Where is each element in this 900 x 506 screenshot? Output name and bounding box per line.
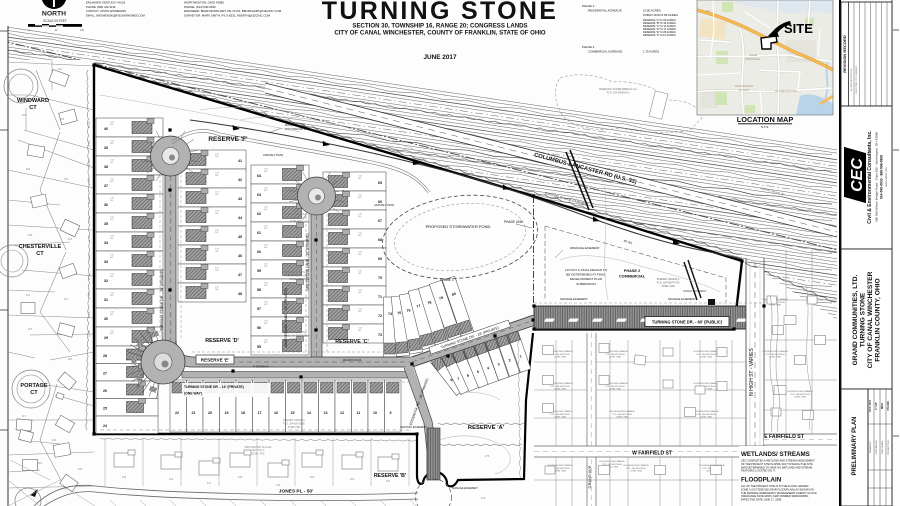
svg-text:35' R/W: 35' R/W xyxy=(89,235,91,242)
svg-text:RESERVE 'A': RESERVE 'A' xyxy=(468,425,505,431)
svg-text:35' R/W: 35' R/W xyxy=(89,311,91,318)
svg-text:RESERVE 'C': RESERVE 'C' xyxy=(335,339,369,345)
svg-text:35' R/W: 35' R/W xyxy=(89,330,91,337)
svg-text:ZONE: GRB: ZONE: GRB xyxy=(794,397,806,399)
svg-text:1 6/16/17 PER CITY COMME: 1 6/16/17 PER CITY COMMENTS xyxy=(856,65,858,94)
svg-text:14: 14 xyxy=(307,411,311,415)
svg-text:CHESTERVILLE: CHESTERVILLE xyxy=(19,244,62,250)
svg-text:PUBLIC R/W=3.68 ACRES: PUBLIC R/W=3.68 ACRES xyxy=(643,13,678,17)
svg-text:REVISION RECORD: REVISION RECORD xyxy=(842,35,847,73)
svg-text:ZONE: GRB: ZONE: GRB xyxy=(661,285,675,288)
svg-text:HOUSEHOLDER, NAME A: HOUSEHOLDER, NAME A xyxy=(693,410,719,413)
svg-text:RESIDENTIAL ACREAGE: RESIDENTIAL ACREAGE xyxy=(588,8,622,12)
svg-text:38: 38 xyxy=(104,165,108,169)
svg-text:P.I.D. 184-002218-00: P.I.D. 184-002218-00 xyxy=(765,354,785,356)
svg-text:112: 112 xyxy=(26,293,31,297)
svg-text:HOUSEHOLDER, NAME A: HOUSEHOLDER, NAME A xyxy=(787,390,813,393)
svg-text:RESERVE 'D': RESERVE 'D' xyxy=(205,338,239,344)
svg-text:HOUSEHOLDER, NAME A: HOUSEHOLDER, NAME A xyxy=(599,460,625,463)
svg-text:W FAIRFIELD ST: W FAIRFIELD ST xyxy=(632,451,672,457)
svg-text:P.I.D. 184-002218-00: P.I.D. 184-002218-00 xyxy=(790,394,810,396)
svg-text:PHASE 2: PHASE 2 xyxy=(624,269,640,273)
svg-text:HOUSEHOLDER, NAME A: HOUSEHOLDER, NAME A xyxy=(693,350,719,353)
svg-text:PORTAGE: PORTAGE xyxy=(20,383,48,389)
svg-text:LAYOUT & FINAL DESIGN TO: LAYOUT & FINAL DESIGN TO xyxy=(565,268,608,272)
svg-text:26: 26 xyxy=(103,389,107,393)
svg-text:JAMESTOWNE LANE - 26' (PRIVATE: JAMESTOWNE LANE - 26' (PRIVATE) xyxy=(284,288,288,348)
svg-text:24: 24 xyxy=(103,424,107,428)
svg-text:PHASE LINE: PHASE LINE xyxy=(504,220,523,224)
svg-text:72: 72 xyxy=(378,314,382,318)
svg-text:FRANKLIN COUNTY, OHIO: FRANKLIN COUNTY, OHIO xyxy=(875,278,882,361)
svg-text:130: 130 xyxy=(78,467,83,471)
svg-text:15: 15 xyxy=(291,411,295,415)
svg-text:PFEIFER, DAMON A: PFEIFER, DAMON A xyxy=(285,271,307,274)
svg-text:ALL OF THE PROJECT SITE IS IN: ALL OF THE PROJECT SITE IS IN THE FLOOD … xyxy=(741,484,808,488)
svg-text:ZONE: GRB: ZONE: GRB xyxy=(554,471,566,473)
svg-text:RESERVE 'F': RESERVE 'F' xyxy=(208,136,248,143)
svg-text:10: 10 xyxy=(373,411,377,415)
svg-text:146: 146 xyxy=(169,477,174,481)
svg-text:ZONE: GRB: ZONE: GRB xyxy=(769,357,781,359)
svg-text:PFEIFER, DAMON A: PFEIFER, DAMON A xyxy=(285,331,307,334)
svg-text:WETLANDS/ STREAMS: WETLANDS/ STREAMS xyxy=(741,451,810,458)
svg-text:CITY OF CANAL WINCHESTER: CITY OF CANAL WINCHESTER xyxy=(867,271,874,368)
svg-text:35' R/W: 35' R/W xyxy=(89,273,91,280)
svg-text:CT: CT xyxy=(36,251,44,257)
svg-text:ZONE: GRB: ZONE: GRB xyxy=(554,417,566,419)
svg-text:ZONE: PND: ZONE: PND xyxy=(290,339,303,341)
svg-text:CONTACT: JASON WISNIEWSKI: CONTACT: JASON WISNIEWSKI xyxy=(86,9,126,13)
svg-text:35' R/W: 35' R/W xyxy=(89,197,91,204)
svg-text:35' R/W: 35' R/W xyxy=(89,216,91,223)
svg-text:68: 68 xyxy=(378,238,382,242)
svg-text:P.I.D. 184-002218-00: P.I.D. 184-002218-00 xyxy=(605,386,625,388)
svg-text:N.T.S.: N.T.S. xyxy=(761,125,769,129)
svg-text:28: 28 xyxy=(103,354,107,358)
svg-text:TURNING STONE: TURNING STONE xyxy=(860,292,867,347)
svg-text:ZONE: GRB: ZONE: GRB xyxy=(554,357,566,359)
svg-text:174: 174 xyxy=(481,496,486,500)
svg-text:N HIGH ST - VARIES: N HIGH ST - VARIES xyxy=(749,348,755,396)
svg-text:CEC: CEC xyxy=(849,158,866,192)
svg-text:P.I.D. 184-000747-00: P.I.D. 184-000747-00 xyxy=(657,282,680,285)
svg-text:PHASE 1: PHASE 1 xyxy=(440,278,454,282)
svg-text:18: 18 xyxy=(241,411,245,415)
svg-text:46: 46 xyxy=(238,254,242,258)
svg-text:SITE: SITE xyxy=(784,21,813,36)
svg-text:TURNING STONE DR. - 16' (PRIVA: TURNING STONE DR. - 16' (PRIVATE) xyxy=(184,385,244,389)
svg-text:ZONE: GRB: ZONE: GRB xyxy=(700,357,712,359)
svg-text:22: 22 xyxy=(175,411,179,415)
svg-text:WINDWARD: WINDWARD xyxy=(17,98,49,104)
svg-text:P.I.D. 184-002218-00: P.I.D. 184-002218-00 xyxy=(550,414,570,416)
svg-text:614-540-6633 - 888-598-6808: 614-540-6633 - 888-598-6808 xyxy=(880,155,884,199)
svg-text:ROUTING PATH: ROUTING PATH xyxy=(285,127,306,131)
svg-text:15.80 ACRES: 15.80 ACRES xyxy=(643,8,661,12)
svg-text:PFEIFER, DAMON A: PFEIFER, DAMON A xyxy=(285,213,307,216)
svg-text:PRELIMINARY PLAN: PRELIMINARY PLAN xyxy=(852,416,858,475)
svg-text:P.I.D. 184-000738-00: P.I.D. 184-000738-00 xyxy=(283,423,305,425)
svg-text:ASPHALT PATH: ASPHALT PATH xyxy=(263,153,283,157)
svg-text:MANOR: MANOR xyxy=(739,88,749,92)
svg-text:ZONE X (OUTSIDE 500-YEAR FLOOD: ZONE X (OUTSIDE 500-YEAR FLOODPLAIN) AS … xyxy=(741,487,814,491)
svg-text:12: 12 xyxy=(340,411,344,415)
svg-text:17: 17 xyxy=(258,411,262,415)
svg-text:35' R/W: 35' R/W xyxy=(89,178,91,185)
svg-text:SURVEYOR: MARK SMITH, PS S-823: SURVEYOR: MARK SMITH, PS S-8231, MSMITH@… xyxy=(184,13,271,17)
svg-text:48: 48 xyxy=(238,292,242,296)
svg-text:35' R/W: 35' R/W xyxy=(89,121,91,128)
svg-text:250 Old Wilson Bridge Road - S: 250 Old Wilson Bridge Road - Suite 250 -… xyxy=(875,132,879,222)
svg-text:55: 55 xyxy=(257,345,261,349)
svg-text:CITY OF CANAL WINCHESTER, COUN: CITY OF CANAL WINCHESTER, COUNTY OF FRAN… xyxy=(334,30,546,37)
svg-text:145: 145 xyxy=(122,475,127,479)
svg-text:RESERVE 'B': RESERVE 'B' xyxy=(374,473,406,479)
svg-text:REUBEN BOYES: REUBEN BOYES xyxy=(775,89,797,93)
svg-text:CHECKED BY:: CHECKED BY: xyxy=(876,439,878,454)
svg-text:NO. DATE DESCRIPTIO: NO. DATE DESCRIPTION xyxy=(850,68,853,91)
svg-text:113: 113 xyxy=(64,297,69,301)
svg-text:107: 107 xyxy=(64,177,69,181)
svg-text:33: 33 xyxy=(104,260,108,264)
svg-text:MAILBOX KIOSK: MAILBOX KIOSK xyxy=(343,359,362,362)
svg-text:106: 106 xyxy=(26,167,31,171)
svg-text:P.I.D. 184-000746-00: P.I.D. 184-000746-00 xyxy=(285,217,307,219)
svg-text:40: 40 xyxy=(104,127,108,131)
svg-text:36: 36 xyxy=(104,203,108,207)
svg-text:59: 59 xyxy=(257,269,261,273)
svg-text:148: 148 xyxy=(238,475,243,479)
svg-text:SIGNAGE EASEMENT: SIGNAGE EASEMENT xyxy=(668,297,696,301)
svg-text:RESERVE 'E': RESERVE 'E' xyxy=(201,358,229,363)
svg-text:64: 64 xyxy=(257,174,261,178)
svg-text:69: 69 xyxy=(378,257,382,261)
svg-text:ZONE: PND: ZONE: PND xyxy=(251,452,264,455)
svg-text:175: 175 xyxy=(485,454,490,458)
svg-text:58: 58 xyxy=(257,288,261,292)
svg-text:TURNING STONE DR. - 26' (PRIVA: TURNING STONE DR. - 26' (PRIVATE) xyxy=(160,269,164,330)
svg-text:EMAIL: JWISNIEWSKI@FISCHERHOME: EMAIL: JWISNIEWSKI@FISCHERHOMES.COM xyxy=(86,13,145,17)
svg-text:OF THE PROJECT SITE IN APRIL 2: OF THE PROJECT SITE IN APRIL 2017 IN WHI… xyxy=(741,462,813,466)
svg-text:PROPOSED STORMWATER POND: PROPOSED STORMWATER POND xyxy=(426,224,491,229)
svg-text:20: 20 xyxy=(208,411,212,415)
svg-text:ZONE: PND: ZONE: PND xyxy=(290,279,303,281)
svg-text:43: 43 xyxy=(238,197,242,201)
svg-text:ZONE: PND: ZONE: PND xyxy=(290,221,303,223)
svg-text:60: 60 xyxy=(257,250,261,254)
svg-text:(ONE WAY): (ONE WAY) xyxy=(184,392,202,396)
svg-text:PHASE 2:: PHASE 2: xyxy=(582,45,595,49)
svg-text:ZONE: GRB: ZONE: GRB xyxy=(554,389,566,391)
svg-text:PFEIFER, DAMON A: PFEIFER, DAMON A xyxy=(283,419,305,422)
svg-text:29: 29 xyxy=(104,336,108,340)
svg-text:PROJECT NO:: PROJECT NO: xyxy=(888,439,890,454)
svg-text:103: 103 xyxy=(22,113,27,117)
svg-text:16: 16 xyxy=(274,411,278,415)
svg-text:JONES PL - 50': JONES PL - 50' xyxy=(279,489,313,495)
svg-text:THE FEDERAL EMERGENCY MANAGEME: THE FEDERAL EMERGENCY MANAGEMENT AGENCY … xyxy=(741,491,817,495)
svg-text:151: 151 xyxy=(350,477,355,481)
svg-text:LOCATION MAP: LOCATION MAP xyxy=(737,115,794,124)
svg-text:(33): (33) xyxy=(706,10,710,13)
svg-text:TURNING STONE DR. - 60' (PUBLI: TURNING STONE DR. - 60' (PUBLIC) xyxy=(652,320,723,325)
svg-text:PHONE: (859) 344-3136: PHONE: (859) 344-3136 xyxy=(86,5,116,9)
svg-text:CEC COMPLETED A WETLAND AND ST: CEC COMPLETED A WETLAND AND STREAM ASSES… xyxy=(741,459,815,463)
svg-text:COMMERCIAL ACREAGE: COMMERCIAL ACREAGE xyxy=(588,50,622,54)
svg-text:INSURANCE RATE MAPS, MAP NUMBE: INSURANCE RATE MAPS, MAP NUMBER 39049C04… xyxy=(741,494,809,498)
svg-text:30: 30 xyxy=(104,317,108,321)
svg-text:31: 31 xyxy=(104,298,108,302)
svg-text:35' R/W: 35' R/W xyxy=(89,254,91,261)
svg-text:11: 11 xyxy=(357,411,361,415)
svg-text:www.cecinc.com: www.cecinc.com xyxy=(884,167,888,186)
svg-text:RESERVE "F"=3.10 ACRES: RESERVE "F"=3.10 ACRES xyxy=(643,33,676,37)
svg-text:BE DETERMINED AT FINAL: BE DETERMINED AT FINAL xyxy=(566,273,606,277)
svg-text:ZONE: GRB: ZONE: GRB xyxy=(630,471,642,473)
svg-text:39: 39 xyxy=(104,146,108,150)
svg-text:DEVELOPMENT PLAN: DEVELOPMENT PLAN xyxy=(570,277,602,281)
svg-text:44: 44 xyxy=(238,216,242,220)
svg-text:75: 75 xyxy=(397,311,401,315)
svg-text:P.I.D. 184-000746-00: P.I.D. 184-000746-00 xyxy=(285,275,307,277)
svg-text:SECTION 30, TOWNSHIP 16, RANGE: SECTION 30, TOWNSHIP 16, RANGE 20; CONGR… xyxy=(352,23,527,30)
svg-text:27: 27 xyxy=(103,372,107,376)
svg-text:57: 57 xyxy=(257,307,261,311)
svg-text:P.I.D. 184-002218-00: P.I.D. 184-002218-00 xyxy=(696,414,716,416)
svg-text:73: 73 xyxy=(378,333,382,337)
svg-text:65: 65 xyxy=(378,181,382,185)
svg-text:147: 147 xyxy=(207,481,212,485)
svg-text:120: 120 xyxy=(80,29,85,32)
svg-text:TURNING STONE: TURNING STONE xyxy=(322,0,558,25)
svg-text:P.I.D. 184-002218-00: P.I.D. 184-002218-00 xyxy=(696,354,716,356)
svg-text:SIGNAGE EASEMENT: SIGNAGE EASEMENT xyxy=(452,487,478,490)
svg-text:32: 32 xyxy=(104,279,108,283)
svg-text:ZONE: GRB: ZONE: GRB xyxy=(609,389,621,391)
svg-text:119: 119 xyxy=(38,461,43,465)
svg-text:DRAINAGE EASEMENT: DRAINAGE EASEMENT xyxy=(570,246,600,250)
svg-text:SANITARY EASEMENT: SANITARY EASEMENT xyxy=(400,426,427,429)
svg-text:P.I.D. 184-002218-00: P.I.D. 184-002218-00 xyxy=(626,468,646,470)
svg-text:9: 9 xyxy=(390,411,392,415)
svg-text:NORTH: NORTH xyxy=(42,11,66,18)
svg-text:152: 152 xyxy=(386,479,391,483)
svg-text:ZONE: GRB: ZONE: GRB xyxy=(700,417,712,419)
svg-text:GREYSTONE LANE - 26' (PRIVATE): GREYSTONE LANE - 26' (PRIVATE) xyxy=(306,233,310,290)
svg-text:110: 110 xyxy=(68,237,73,241)
svg-text:67: 67 xyxy=(378,219,382,223)
svg-text:104: 104 xyxy=(60,117,65,121)
svg-text:47: 47 xyxy=(238,273,242,277)
svg-text:P.I.D. 184-002218-00: P.I.D. 184-002218-00 xyxy=(550,386,570,388)
svg-text:P.I.D. 184-000748-00: P.I.D. 184-000748-00 xyxy=(285,335,307,337)
svg-text:HOUSEHOLDER, NAME A: HOUSEHOLDER, NAME A xyxy=(693,382,719,385)
svg-text:HOUSEHOLDER, NAME A: HOUSEHOLDER, NAME A xyxy=(762,350,788,353)
svg-text:42: 42 xyxy=(238,178,242,182)
svg-text:13: 13 xyxy=(324,411,328,415)
svg-text:37: 37 xyxy=(104,184,108,188)
svg-text:35' R/W: 35' R/W xyxy=(89,140,91,147)
svg-text:FEATURES LOCATED ON IT.: FEATURES LOCATED ON IT. xyxy=(741,469,776,473)
svg-text:ERLANGER, KENTUCKY 41018: ERLANGER, KENTUCKY 41018 xyxy=(86,1,126,5)
svg-text:ZONE: GRB: ZONE: GRB xyxy=(609,357,621,359)
svg-text:MDO: MDO xyxy=(880,403,884,409)
svg-text:OCT. 2017: OCT. 2017 xyxy=(868,399,872,412)
svg-text:JUNE 2017: JUNE 2017 xyxy=(423,54,456,61)
svg-text:DRAWN BY:: DRAWN BY: xyxy=(869,441,872,454)
svg-text:ZONE: GRB: ZONE: GRB xyxy=(616,417,628,419)
svg-text:CT: CT xyxy=(29,105,37,111)
svg-text:150: 150 xyxy=(310,475,315,479)
svg-text:EFFECTIVE DATE JUNE 17, 2008.: EFFECTIVE DATE JUNE 17, 2008. xyxy=(741,498,782,502)
svg-text:76: 76 xyxy=(406,308,411,313)
svg-text:ZONE: PND: ZONE: PND xyxy=(288,427,301,429)
svg-text:FLOODPLAIN: FLOODPLAIN xyxy=(741,477,782,484)
svg-text:62: 62 xyxy=(257,212,261,216)
svg-text:SCALE IN FEET: SCALE IN FEET xyxy=(43,19,67,23)
svg-text:21: 21 xyxy=(192,411,196,415)
svg-text:115: 115 xyxy=(28,327,33,331)
svg-text:61: 61 xyxy=(257,231,261,235)
svg-text:35: 35 xyxy=(104,222,108,226)
svg-text:109: 109 xyxy=(28,233,33,237)
svg-text:WAS DETERMINED TO HAVE NO WETL: WAS DETERMINED TO HAVE NO WETLAND AND ST… xyxy=(741,465,812,469)
svg-text:101: 101 xyxy=(58,67,63,71)
svg-text:74: 74 xyxy=(388,312,392,316)
svg-text:1"=40': 1"=40' xyxy=(874,402,878,410)
svg-text:117: 117 xyxy=(22,414,27,418)
svg-text:41: 41 xyxy=(238,159,242,163)
svg-text:35' R/W: 35' R/W xyxy=(89,292,91,299)
svg-text:HOUSEHOLDER, NAME A: HOUSEHOLDER, NAME A xyxy=(623,464,649,467)
svg-text:ASPHALT PATH: ASPHALT PATH xyxy=(374,203,394,207)
svg-text:HOUSEHOLDER, NAME A: HOUSEHOLDER, NAME A xyxy=(609,410,635,413)
svg-text:56: 56 xyxy=(257,326,261,330)
svg-text:71: 71 xyxy=(378,295,382,299)
svg-text:35' R/W: 35' R/W xyxy=(89,159,91,166)
svg-text:116: 116 xyxy=(68,357,73,361)
svg-text:CT: CT xyxy=(30,390,38,396)
svg-text:34: 34 xyxy=(104,241,108,245)
svg-text:19: 19 xyxy=(225,411,229,415)
svg-text:5' SIDEWALK: 5' SIDEWALK xyxy=(253,365,269,369)
svg-text:SIGNAGE EASEMENT: SIGNAGE EASEMENT xyxy=(560,297,588,301)
svg-text:171-626: 171-626 xyxy=(886,401,890,411)
svg-text:PFEIFER, DAMON A: PFEIFER, DAMON A xyxy=(657,278,680,281)
svg-text:1.75 ACRES: 1.75 ACRES xyxy=(643,50,659,54)
svg-text:149: 149 xyxy=(276,483,281,487)
svg-text:45: 45 xyxy=(238,235,242,239)
svg-text:63: 63 xyxy=(257,193,261,197)
svg-text:P.I.D. 184-002218-00: P.I.D. 184-002218-00 xyxy=(605,354,625,356)
svg-text:Civil & Environmental Consulta: Civil & Environmental Consultants, Inc. xyxy=(867,130,873,224)
svg-text:GRAND COMMUNITIES, LTD.: GRAND COMMUNITIES, LTD. xyxy=(852,274,859,365)
svg-text:P.I.D. 184-000843-00: P.I.D. 184-000843-00 xyxy=(607,91,630,94)
svg-text:GRAND AVE: GRAND AVE xyxy=(587,465,592,488)
svg-text:DWG SCALE:: DWG SCALE: xyxy=(881,440,884,454)
svg-text:P.I.D. 184-002218-00: P.I.D. 184-002218-00 xyxy=(612,414,632,416)
svg-text:118: 118 xyxy=(52,438,57,442)
svg-text:Winchester: Winchester xyxy=(745,57,760,61)
svg-text:25: 25 xyxy=(103,407,107,411)
svg-text:SUBMISSION: SUBMISSION xyxy=(576,282,595,286)
svg-text:COMMERCIAL: COMMERCIAL xyxy=(619,275,646,279)
svg-text:70: 70 xyxy=(378,276,382,280)
svg-text:E FAIRFIELD ST: E FAIRFIELD ST xyxy=(764,434,805,440)
